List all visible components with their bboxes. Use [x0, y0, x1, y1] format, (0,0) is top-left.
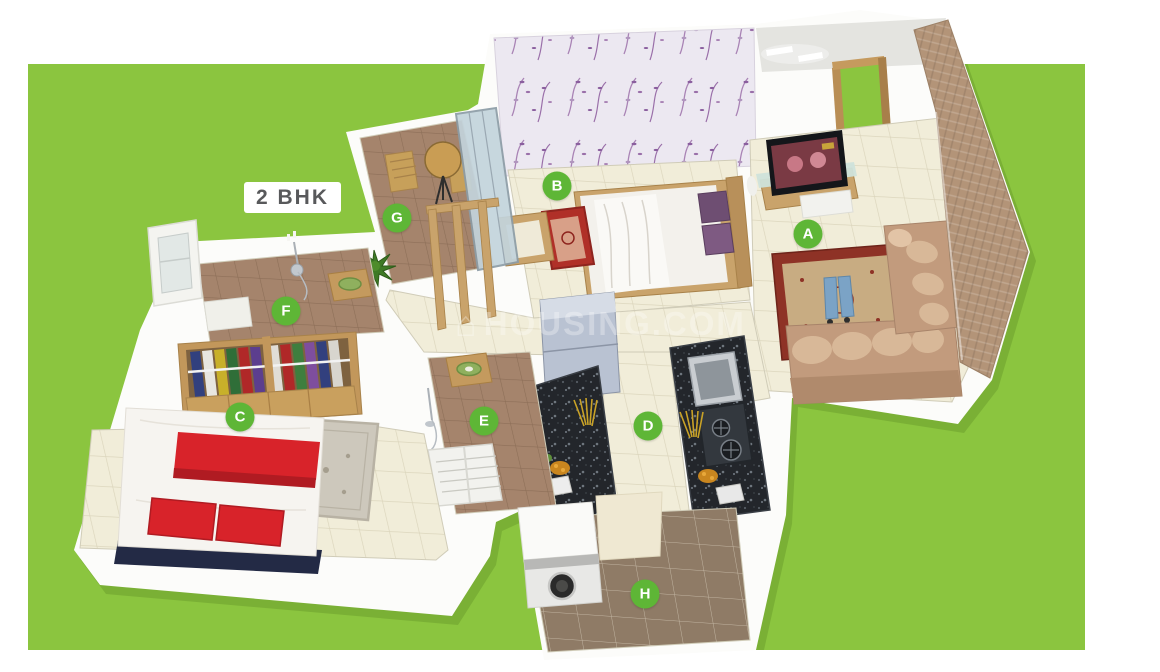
room-badge-a: A [794, 220, 823, 249]
window-frame [148, 220, 202, 306]
washbasin [446, 353, 492, 387]
room-badge-f: F [272, 297, 301, 326]
room-badge-b: B [543, 172, 572, 201]
pillow [216, 505, 284, 546]
vent-panel [428, 444, 502, 506]
tv-icon [766, 130, 848, 196]
pillow [698, 191, 730, 223]
gas-stove-icon [698, 403, 752, 467]
washbasin [328, 269, 372, 301]
bedroom-c [80, 408, 448, 574]
shower-tray [204, 297, 252, 331]
wallpaper-wall [494, 28, 756, 176]
pillow [148, 498, 216, 540]
utility-balcony [518, 492, 750, 652]
room-badge-g: G [383, 204, 412, 233]
house-icon: ⌂ [455, 303, 479, 345]
plan-type-label: 2 BHK [244, 182, 341, 213]
floor-plan-canvas: 2 BHK ⌂ HOUSING.COM ABCDEFGH [0, 0, 1160, 672]
living-room [746, 118, 968, 404]
bed [574, 176, 752, 300]
room-badge-c: C [226, 403, 255, 432]
room-badge-h: H [631, 580, 660, 609]
watermark-text: HOUSING.COM [484, 305, 746, 343]
washing-machine [518, 502, 602, 608]
sink [688, 352, 742, 406]
bed [114, 408, 324, 574]
fruit-bowl [698, 469, 718, 483]
bedroom-b [494, 28, 756, 320]
room-badge-e: E [470, 407, 499, 436]
kitchen-back-wall [596, 492, 662, 560]
plan-type-text: 2 BHK [256, 186, 329, 209]
pillow [702, 223, 734, 255]
room-badge-d: D [634, 412, 663, 441]
balcony-chair [385, 151, 418, 192]
fruit-bowl [550, 461, 570, 475]
watermark: ⌂ HOUSING.COM [455, 303, 746, 345]
